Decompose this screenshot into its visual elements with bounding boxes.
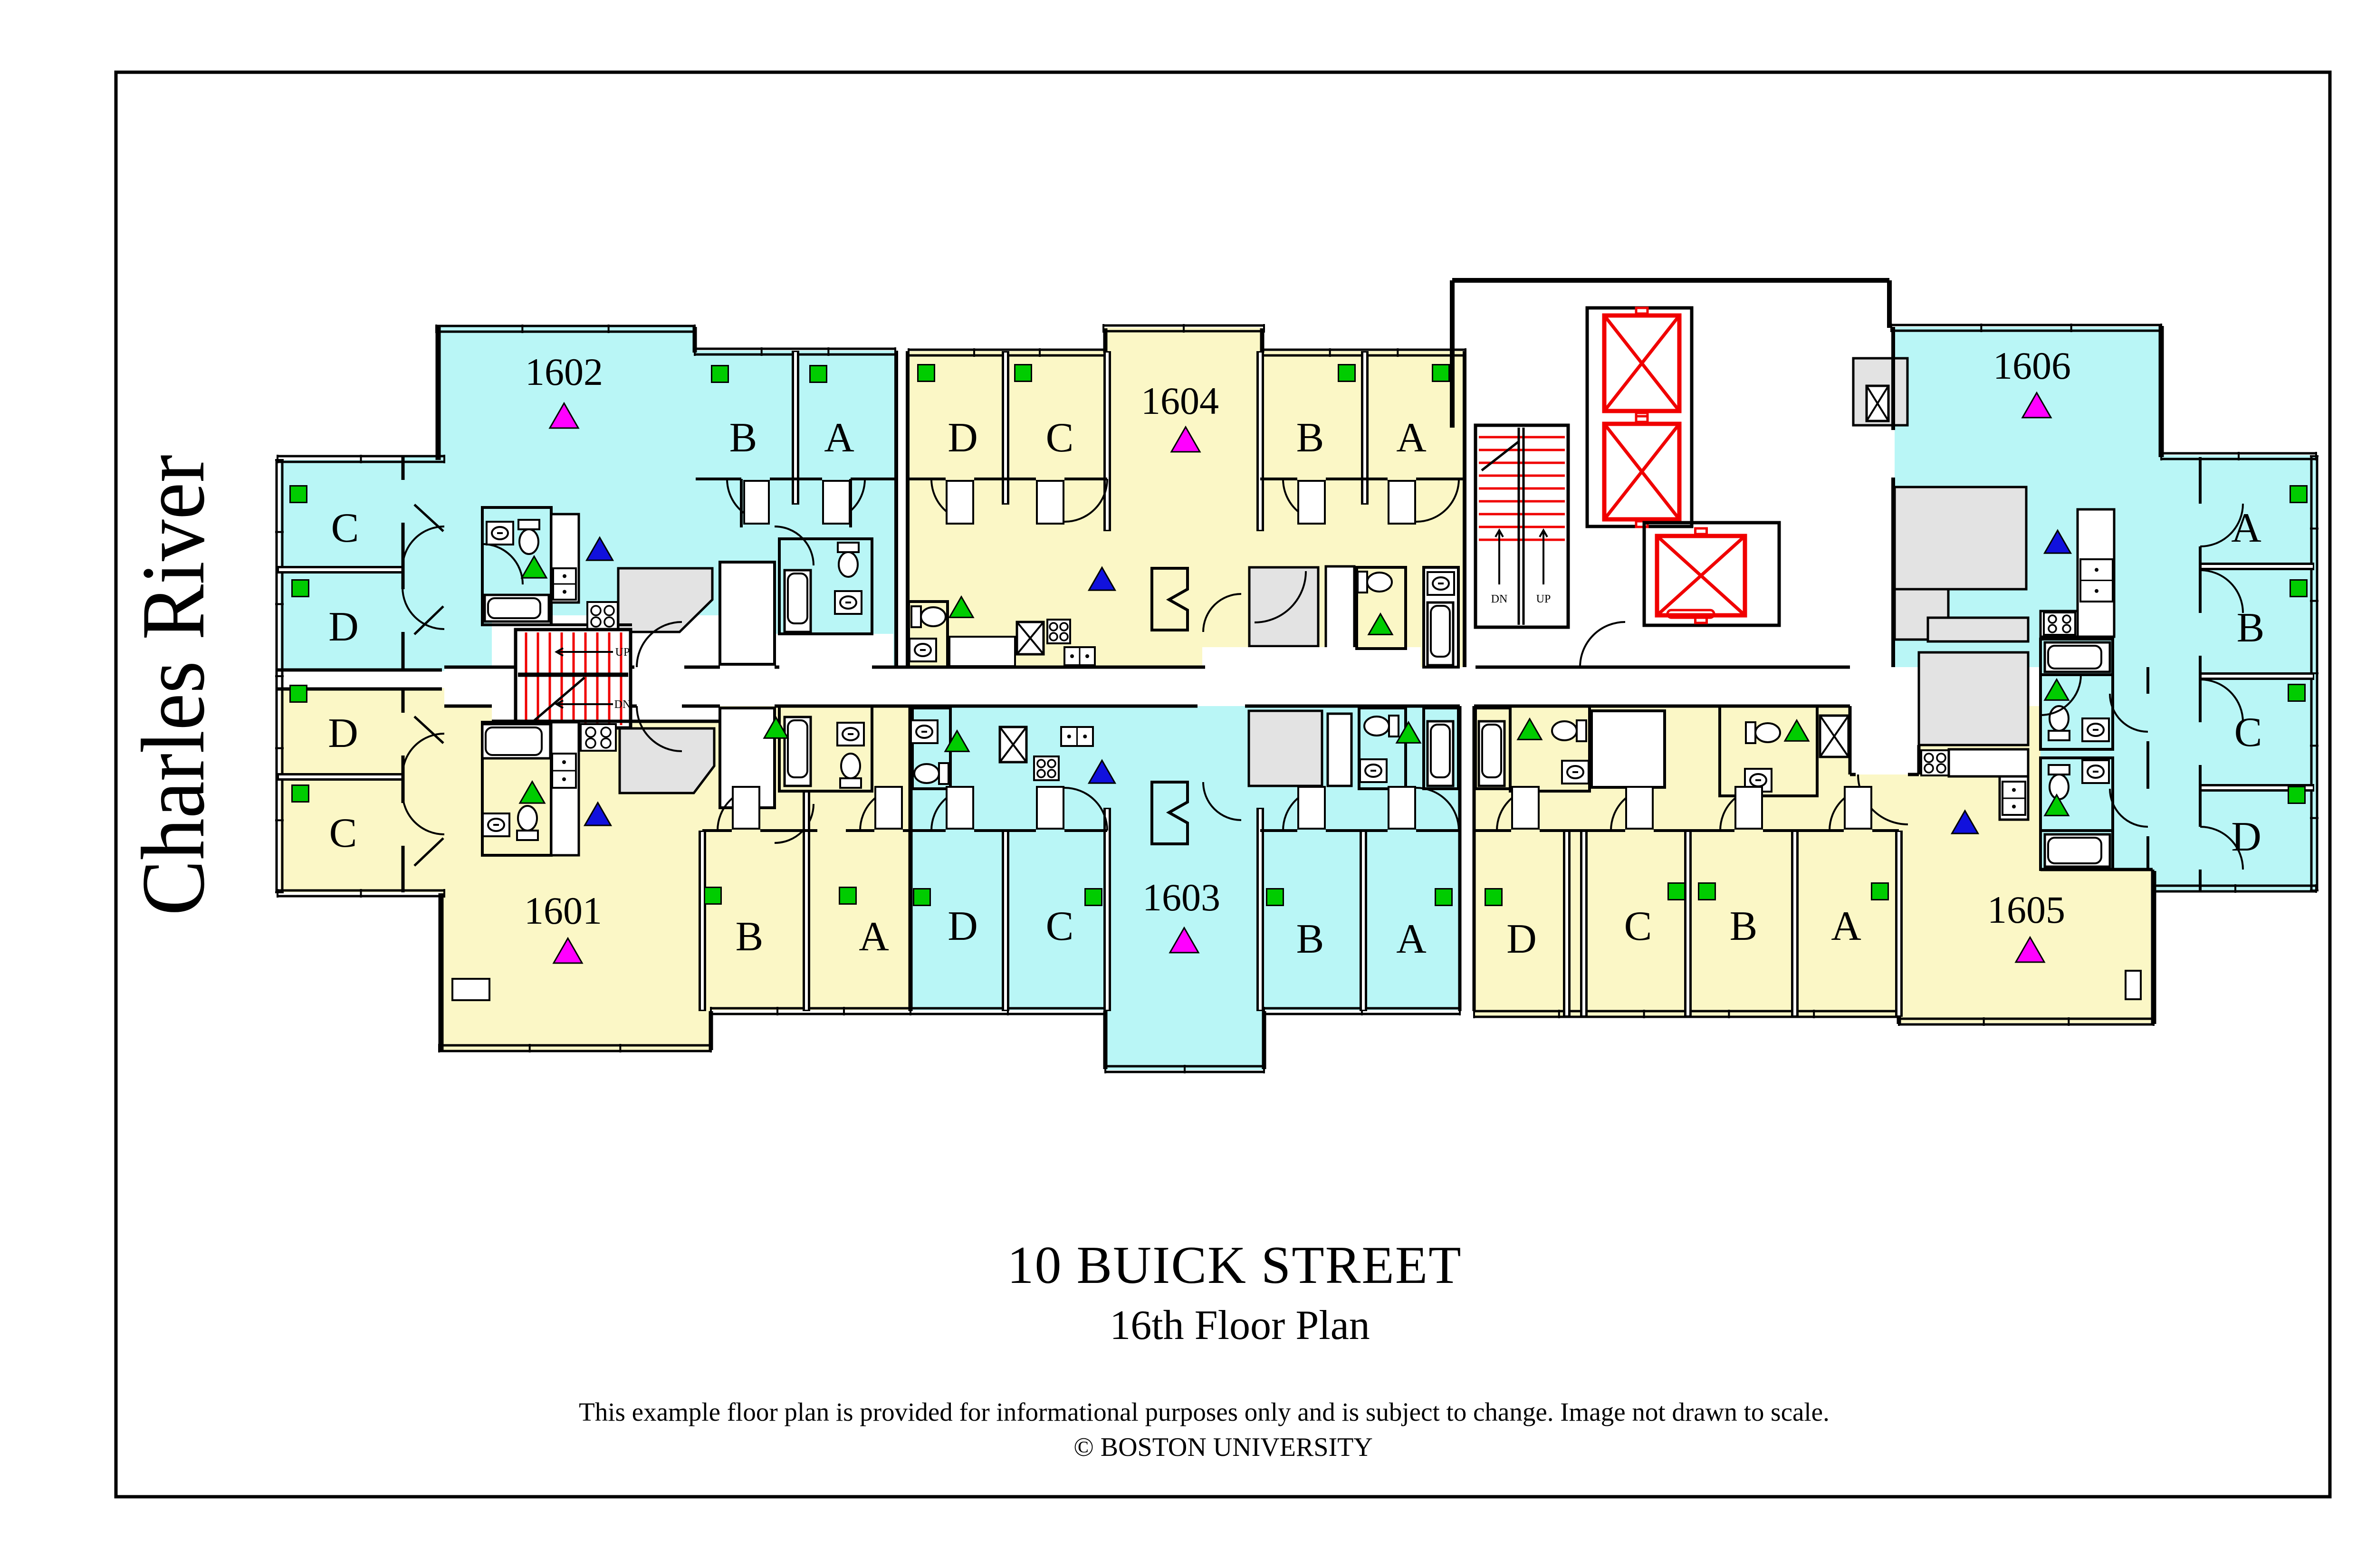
svg-text:16th Floor Plan: 16th Floor Plan bbox=[1110, 1302, 1370, 1348]
svg-text:This example floor plan is pro: This example floor plan is provided for … bbox=[579, 1397, 1830, 1426]
svg-text:B: B bbox=[729, 415, 757, 461]
svg-text:D: D bbox=[948, 903, 978, 949]
svg-text:A: A bbox=[2231, 505, 2261, 551]
svg-text:D: D bbox=[1506, 916, 1537, 962]
svg-text:B: B bbox=[1730, 903, 1758, 949]
svg-text:D: D bbox=[948, 415, 978, 461]
svg-text:C: C bbox=[1624, 903, 1652, 949]
svg-text:1606: 1606 bbox=[1993, 344, 2071, 387]
svg-text:D: D bbox=[2231, 814, 2261, 860]
svg-text:1604: 1604 bbox=[1141, 379, 1219, 422]
svg-text:C: C bbox=[1046, 903, 1074, 949]
svg-text:A: A bbox=[859, 914, 889, 960]
svg-text:1602: 1602 bbox=[525, 350, 603, 393]
svg-text:B: B bbox=[736, 914, 764, 960]
svg-text:A: A bbox=[1396, 415, 1427, 461]
svg-text:C: C bbox=[2234, 709, 2262, 755]
svg-text:B: B bbox=[1296, 415, 1324, 461]
svg-text:A: A bbox=[1831, 903, 1861, 949]
svg-text:10 BUICK STREET: 10 BUICK STREET bbox=[1007, 1236, 1462, 1295]
svg-text:UP: UP bbox=[615, 646, 630, 659]
svg-text:C: C bbox=[329, 810, 357, 856]
svg-text:DN: DN bbox=[1491, 593, 1508, 605]
svg-text:DN: DN bbox=[614, 698, 631, 711]
svg-text:© BOSTON UNIVERSITY: © BOSTON UNIVERSITY bbox=[1073, 1433, 1373, 1462]
svg-text:C: C bbox=[331, 505, 359, 551]
svg-text:UP: UP bbox=[1536, 593, 1551, 605]
svg-text:D: D bbox=[328, 604, 359, 650]
svg-text:D: D bbox=[328, 710, 358, 756]
svg-text:A: A bbox=[824, 415, 854, 461]
svg-text:Charles River: Charles River bbox=[124, 455, 223, 916]
svg-text:B: B bbox=[1296, 916, 1324, 962]
svg-text:1601: 1601 bbox=[524, 889, 602, 932]
svg-text:B: B bbox=[2237, 605, 2265, 651]
svg-text:1603: 1603 bbox=[1142, 876, 1220, 919]
svg-text:A: A bbox=[1396, 916, 1427, 962]
svg-text:1605: 1605 bbox=[1987, 888, 2065, 931]
svg-text:C: C bbox=[1046, 415, 1074, 461]
